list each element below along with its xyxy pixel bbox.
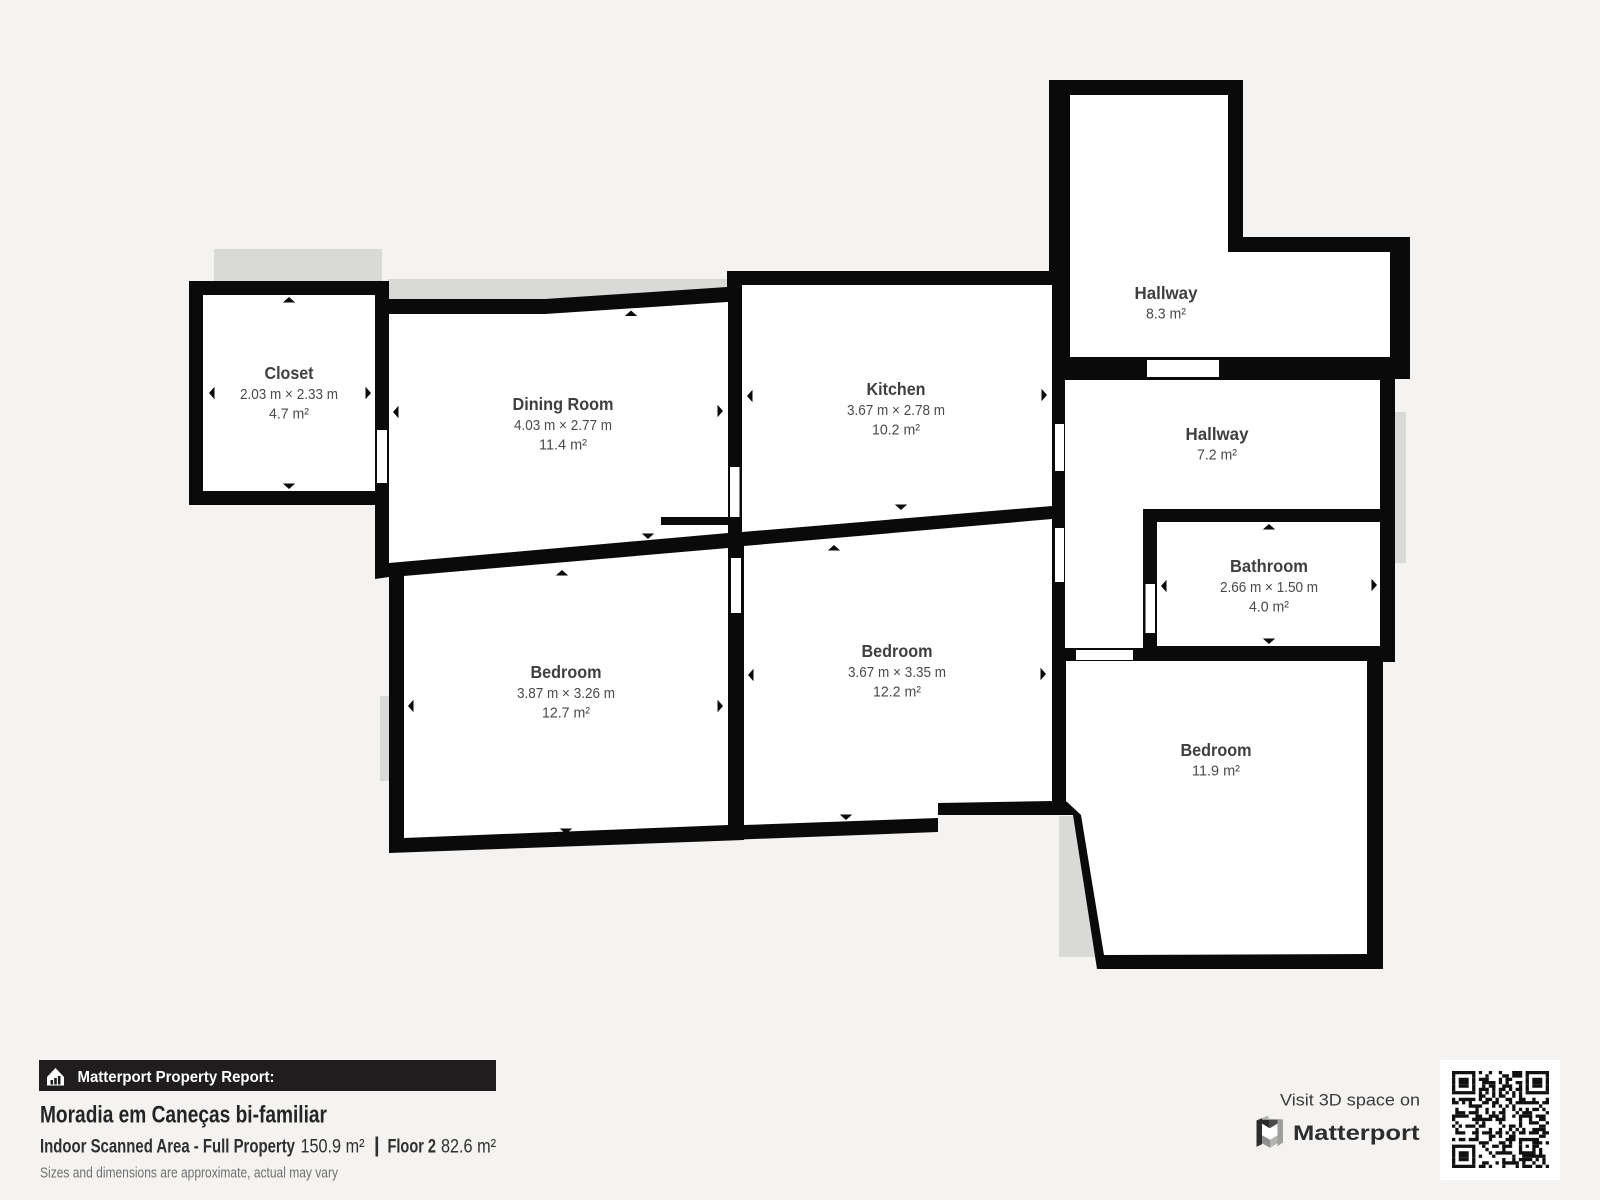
svg-text:4.7 m²: 4.7 m² <box>269 406 309 423</box>
svg-text:3.87 m × 3.26 m: 3.87 m × 3.26 m <box>517 685 615 702</box>
svg-text:Dining Room: Dining Room <box>513 394 614 414</box>
svg-text:12.7 m²: 12.7 m² <box>542 705 590 722</box>
svg-text:10.2 m²: 10.2 m² <box>872 422 920 439</box>
svg-text:2.03 m × 2.33 m: 2.03 m × 2.33 m <box>240 386 338 403</box>
svg-text:3.67 m × 3.35 m: 3.67 m × 3.35 m <box>848 664 946 681</box>
svg-text:Hallway: Hallway <box>1135 283 1198 303</box>
svg-text:7.2 m²: 7.2 m² <box>1197 447 1237 464</box>
svg-text:4.0 m²: 4.0 m² <box>1249 599 1289 616</box>
svg-text:Bedroom: Bedroom <box>862 641 933 661</box>
svg-text:Visit 3D space on: Visit 3D space on <box>1280 1091 1420 1110</box>
svg-text:11.4 m²: 11.4 m² <box>539 437 587 454</box>
svg-text:Floor 2: Floor 2 <box>388 1137 437 1158</box>
svg-text:8.3 m²: 8.3 m² <box>1146 306 1186 323</box>
svg-text:Hallway: Hallway <box>1186 424 1249 444</box>
svg-text:2.66 m × 1.50 m: 2.66 m × 1.50 m <box>1220 579 1318 596</box>
svg-text:Bedroom: Bedroom <box>1181 740 1252 760</box>
svg-text:Sizes and dimensions are appro: Sizes and dimensions are approximate, ac… <box>40 1166 339 1182</box>
svg-text:Bathroom: Bathroom <box>1230 556 1308 576</box>
svg-text:Matterport: Matterport <box>1293 1121 1420 1145</box>
svg-text:Bedroom: Bedroom <box>531 662 602 682</box>
svg-text:Matterport Property Report:: Matterport Property Report: <box>78 1069 275 1086</box>
svg-text:12.2 m²: 12.2 m² <box>873 684 921 701</box>
svg-text:Indoor Scanned Area - Full Pro: Indoor Scanned Area - Full Property <box>40 1137 295 1158</box>
svg-text:82.6 m²: 82.6 m² <box>441 1137 496 1158</box>
svg-text:Moradia em Caneças bi-familiar: Moradia em Caneças bi-familiar <box>40 1102 327 1129</box>
svg-text:4.03 m × 2.77 m: 4.03 m × 2.77 m <box>514 417 612 434</box>
svg-text:Kitchen: Kitchen <box>867 379 926 399</box>
svg-text:3.67 m × 2.78 m: 3.67 m × 2.78 m <box>847 402 945 419</box>
svg-text:11.9 m²: 11.9 m² <box>1192 763 1240 780</box>
svg-text:150.9 m²: 150.9 m² <box>301 1137 365 1158</box>
svg-text:Closet: Closet <box>265 363 314 383</box>
